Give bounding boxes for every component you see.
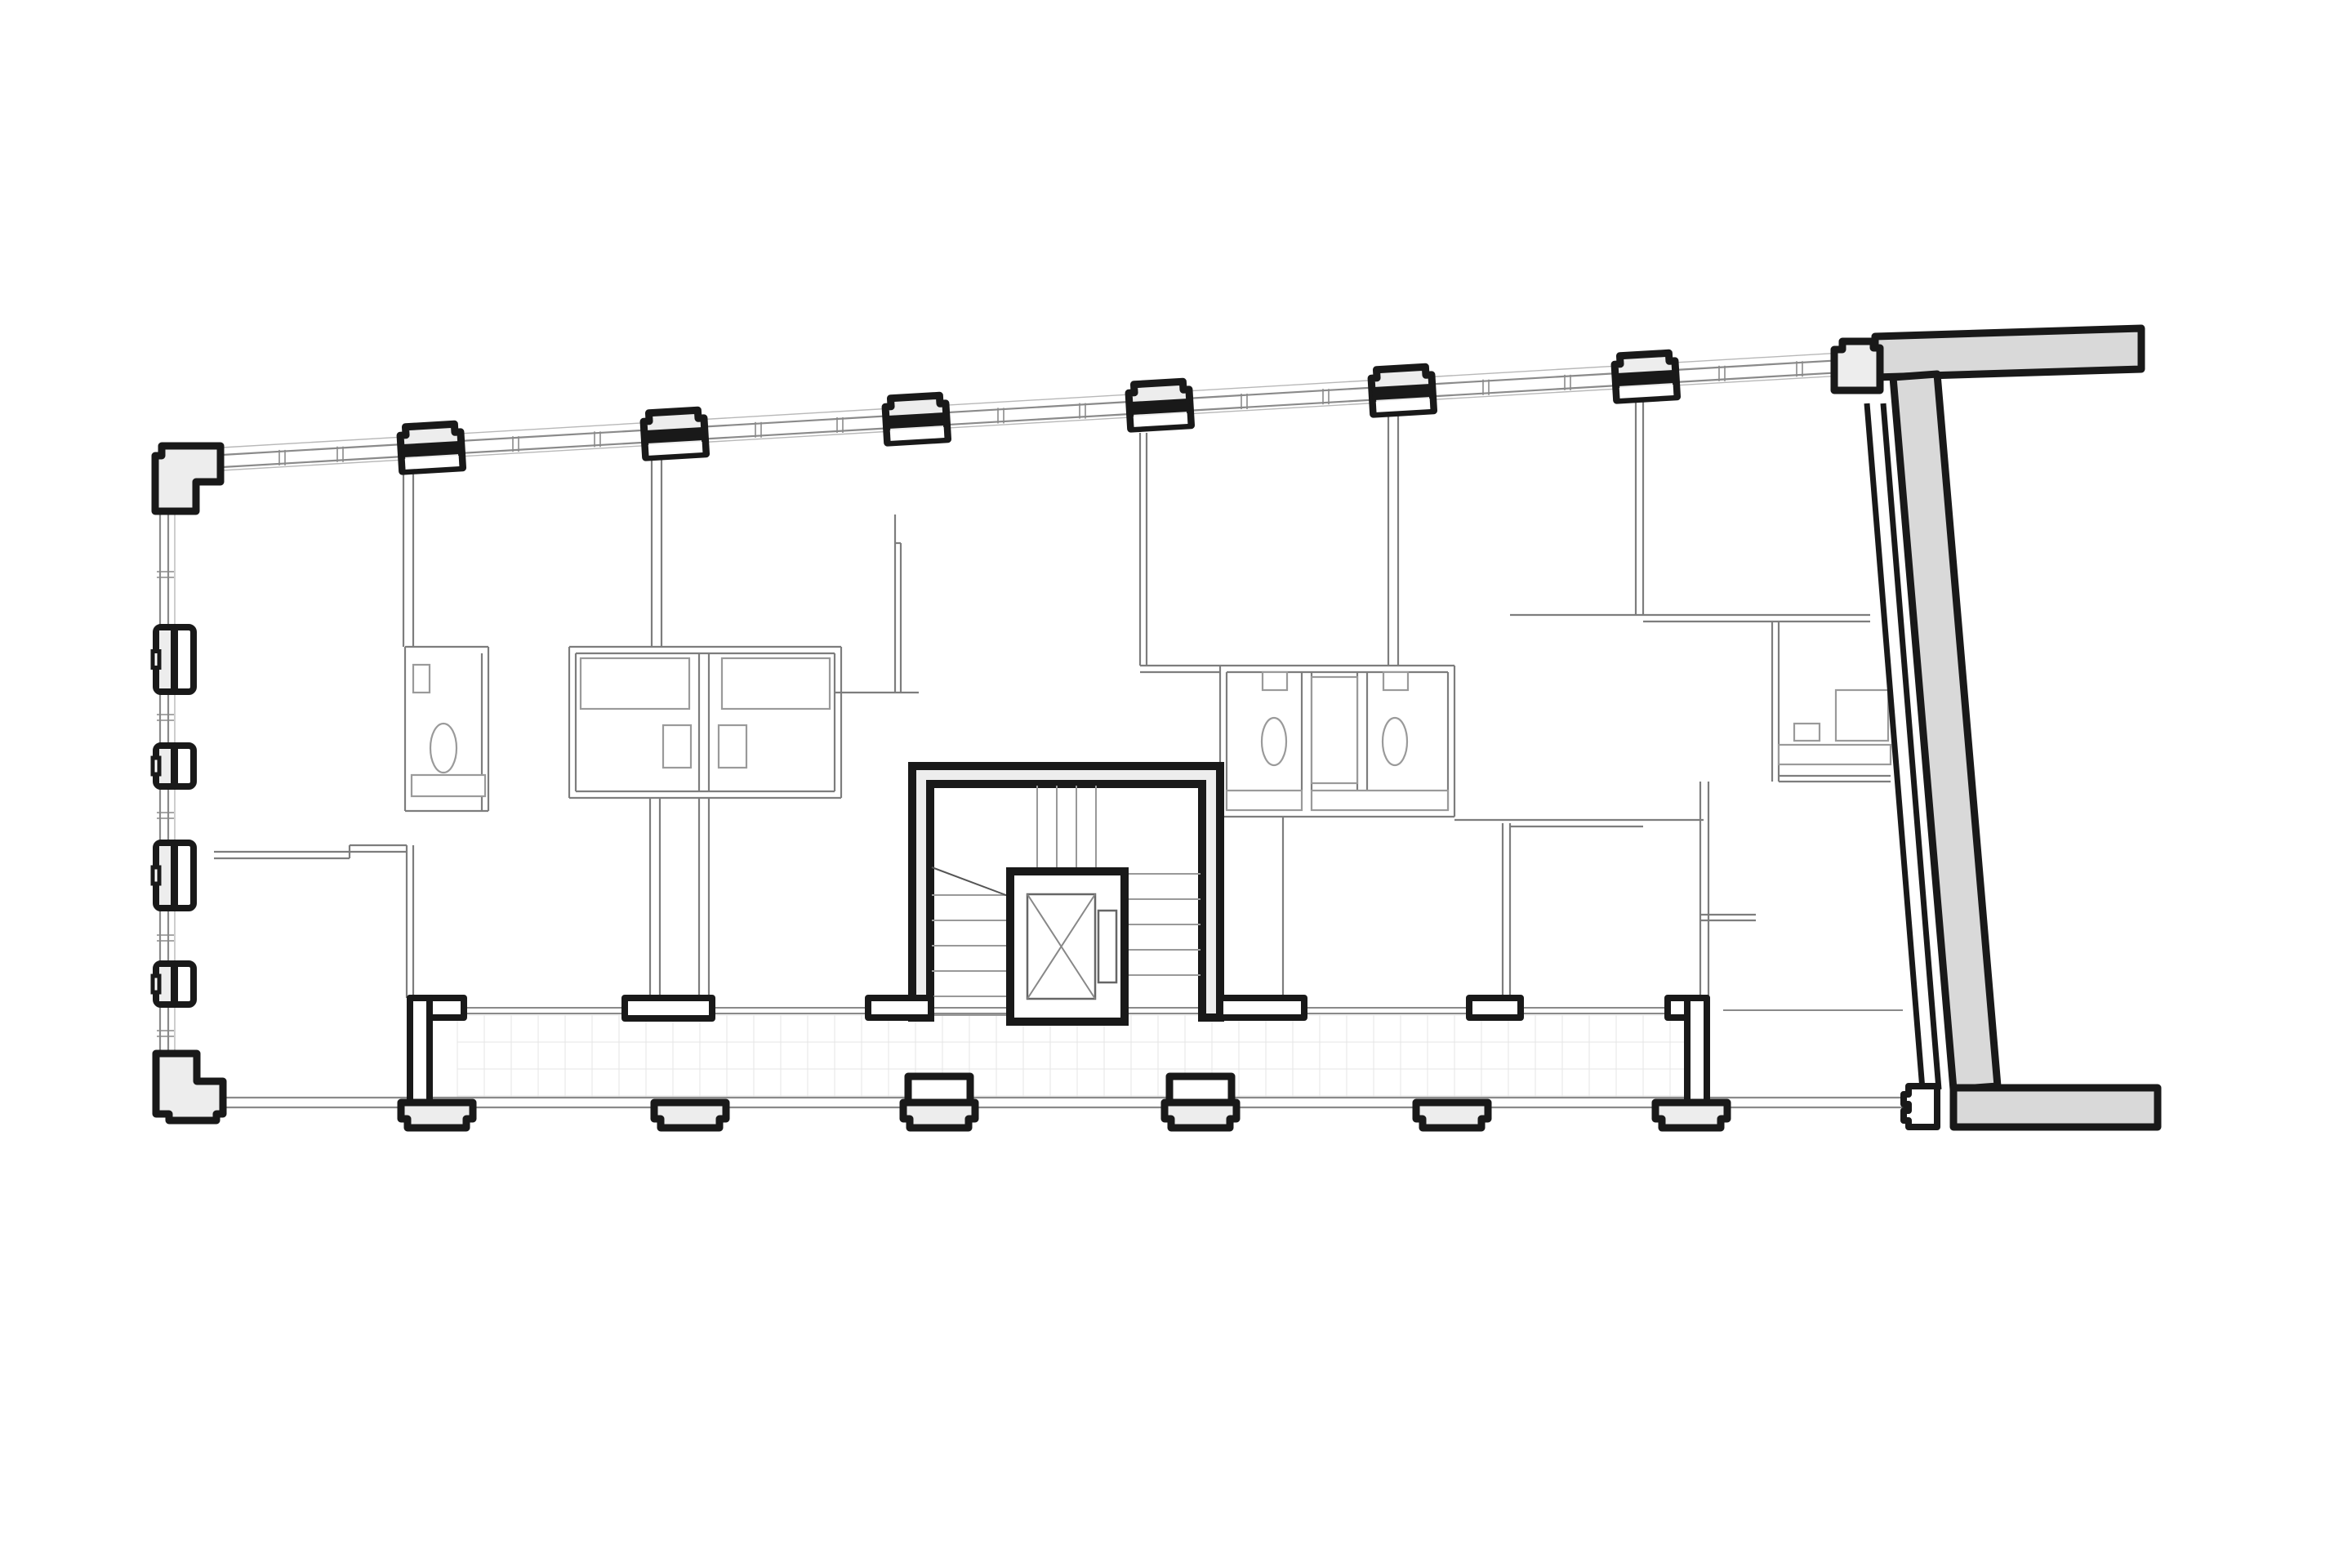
corner-pier-bottom-right bbox=[1904, 1086, 1937, 1127]
fixture bbox=[1794, 724, 1820, 741]
bottom-pier-boat bbox=[1416, 1102, 1488, 1128]
floor-plan-drawing bbox=[0, 0, 2352, 1568]
left-pier-notch bbox=[153, 976, 159, 992]
left-pier-divider bbox=[171, 747, 178, 785]
facade-pier bbox=[1128, 381, 1191, 429]
lintel bbox=[1469, 998, 1521, 1018]
corridor-pier-stem bbox=[1687, 998, 1707, 1104]
fixture bbox=[722, 658, 830, 709]
fixture bbox=[1836, 690, 1888, 741]
left-pier-notch bbox=[153, 867, 159, 884]
facade-pier bbox=[643, 410, 706, 457]
left-pier-notch bbox=[153, 758, 159, 774]
corner-pier-top-right bbox=[1834, 341, 1880, 390]
fixture bbox=[581, 658, 689, 709]
fixture bbox=[1312, 791, 1448, 810]
bottom-pier-boat bbox=[401, 1102, 473, 1128]
facade-pier bbox=[1614, 353, 1677, 400]
bottom-pier-boat bbox=[1165, 1102, 1236, 1128]
fixture bbox=[412, 775, 485, 796]
shear-wall-segment bbox=[1953, 1088, 2158, 1127]
fixture bbox=[719, 725, 746, 768]
toilet bbox=[1383, 718, 1407, 765]
lintel bbox=[1220, 998, 1304, 1018]
left-pier-divider bbox=[171, 844, 178, 906]
floor-plan-page bbox=[0, 0, 2352, 1568]
fixture bbox=[663, 725, 691, 768]
elevator bbox=[1010, 871, 1125, 1022]
left-pier-notch bbox=[153, 652, 159, 668]
fixture bbox=[1383, 672, 1408, 690]
lintel bbox=[868, 998, 931, 1018]
facade-pier bbox=[1370, 367, 1433, 414]
elevator-door bbox=[1098, 911, 1116, 982]
bottom-pier-boat bbox=[1655, 1102, 1727, 1128]
fixture bbox=[1312, 677, 1357, 783]
left-pier-divider bbox=[171, 629, 178, 690]
fixture bbox=[1779, 745, 1891, 764]
facade-pier bbox=[399, 424, 462, 471]
bottom-pier-boat bbox=[903, 1102, 975, 1128]
bottom-pier-boat bbox=[654, 1102, 726, 1128]
toilet bbox=[430, 724, 457, 773]
shear-wall-segment bbox=[1875, 328, 2141, 377]
toilet bbox=[1262, 718, 1286, 765]
floor-plan-canvas bbox=[0, 0, 2352, 1568]
corridor-pier-stem bbox=[410, 998, 430, 1104]
fixture bbox=[413, 665, 430, 693]
lintel bbox=[625, 998, 712, 1018]
facade-pier bbox=[884, 395, 947, 443]
fixture bbox=[1263, 672, 1287, 690]
left-pier-divider bbox=[171, 965, 178, 1003]
fixture bbox=[1227, 791, 1302, 810]
